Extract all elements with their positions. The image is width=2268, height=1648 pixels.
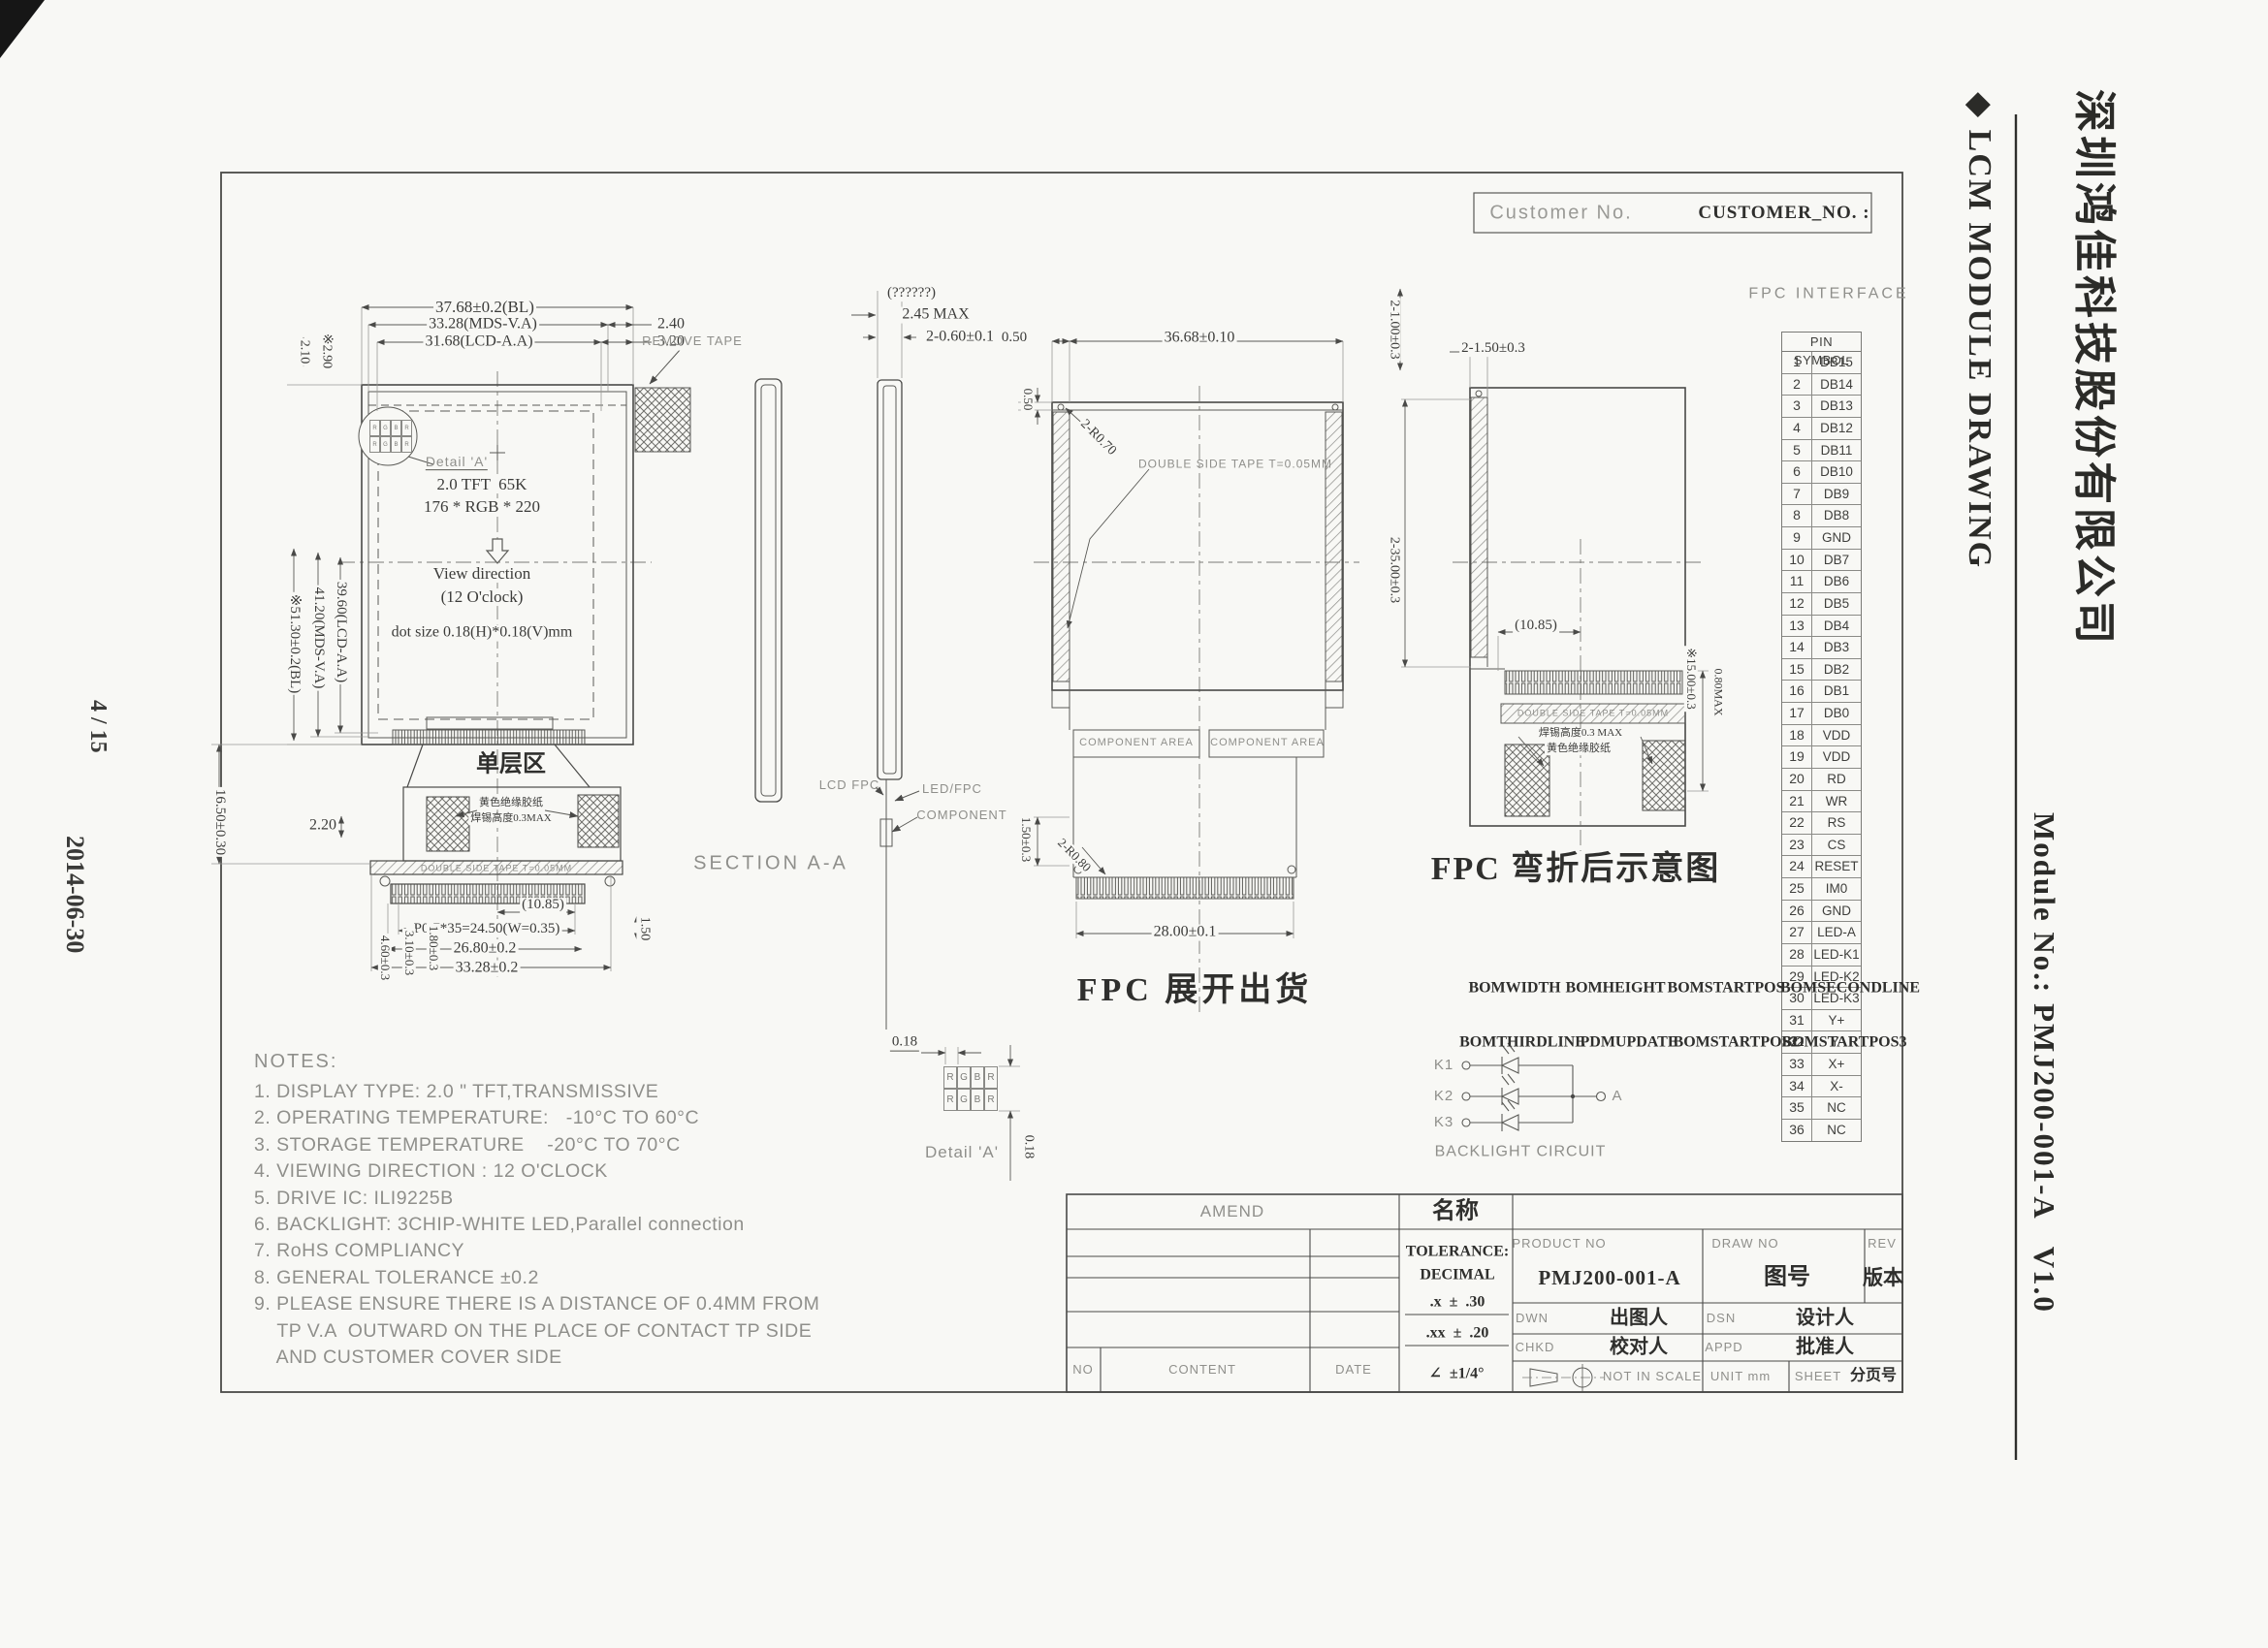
pin-number: 20 — [1782, 769, 1812, 790]
titleblock-date-label: DATE — [1335, 1363, 1372, 1377]
titleblock-no-label: NO — [1072, 1363, 1094, 1377]
pin-number: 7 — [1782, 484, 1812, 505]
pin-row: 21WR — [1782, 791, 1861, 813]
dim-label: ※51.30±0.2(BL) — [286, 592, 302, 695]
subpixel-cell: R — [943, 1066, 957, 1089]
pin-row: 33X+ — [1782, 1054, 1861, 1076]
pin-number: 24 — [1782, 856, 1812, 877]
pin-row: 4DB12 — [1782, 418, 1861, 440]
detail-a-pointer-label: Detail 'A' — [426, 455, 488, 470]
component-area-label: COMPONENT AREA — [1210, 738, 1325, 749]
customer-no-stamp: Customer No. — [1489, 203, 1632, 225]
pin-row: 23CS — [1782, 835, 1861, 857]
subpixel-cell: R — [369, 420, 380, 436]
pin-number: 12 — [1782, 593, 1812, 615]
pin-row: 18VDD — [1782, 725, 1861, 747]
note-line: 2. OPERATING TEMPERATURE: -10°C TO 60°C — [254, 1105, 933, 1131]
dim-label: 0.18 — [1021, 1133, 1036, 1161]
insulation-tape-label: 黄色绝缘胶纸 — [1545, 744, 1613, 755]
titleblock-rev: 版本 — [1863, 1267, 1903, 1288]
note-line: TP V.A OUTWARD ON THE PLACE OF CONTACT T… — [254, 1318, 933, 1345]
dim-label: 39.60(LCD-A.A) — [333, 580, 348, 684]
detail-a-subpixel-grid: RGBRRGBR — [943, 1066, 998, 1111]
pin-symbol: DB9 — [1812, 484, 1861, 505]
dim-label: 3.10±0.3 — [402, 929, 416, 977]
pin-symbol: GND — [1812, 527, 1861, 549]
pin-row: 12DB5 — [1782, 593, 1861, 616]
pin-number: 17 — [1782, 703, 1812, 724]
bom-artifact-text: BOMSTARTPOS — [1668, 981, 1785, 998]
titleblock-tolerance-label: TOLERANCE: — [1406, 1245, 1509, 1261]
pin-number: 13 — [1782, 616, 1812, 637]
pin-row: 11DB6 — [1782, 571, 1861, 593]
pin-number: 35 — [1782, 1097, 1812, 1119]
dim-label: 28.00±0.1 — [1152, 925, 1219, 941]
pin-symbol: DB7 — [1812, 550, 1861, 571]
backlight-terminal-label: K1 — [1434, 1058, 1453, 1073]
subpixel-cell: B — [391, 420, 401, 436]
note-line: 1. DISPLAY TYPE: 2.0 " TFT,TRANSMISSIVE — [254, 1079, 933, 1105]
backlight-terminal-label: K3 — [1434, 1115, 1453, 1130]
pin-row: 27LED-A — [1782, 922, 1861, 944]
pin-number: 6 — [1782, 461, 1812, 483]
pin-row: 3DB13 — [1782, 396, 1861, 418]
pin-symbol: LED-A — [1812, 922, 1861, 943]
component-area-label: COMPONENT AREA — [1079, 738, 1194, 749]
pin-number: 25 — [1782, 878, 1812, 900]
pin-number: 21 — [1782, 791, 1812, 812]
pin-symbol: CS — [1812, 835, 1861, 856]
dim-label: 41.20(MDS-V.A) — [310, 586, 326, 691]
pin-symbol: LED-K1 — [1812, 944, 1861, 966]
titleblock-dwn: 出图人 — [1610, 1309, 1668, 1329]
pin-number: 23 — [1782, 835, 1812, 856]
subpixel-cell: R — [401, 436, 412, 453]
pin-row: 35NC — [1782, 1097, 1861, 1120]
titleblock-amend-label: AMEND — [1200, 1203, 1264, 1220]
note-line: 9. PLEASE ENSURE THERE IS A DISTANCE OF … — [254, 1291, 933, 1317]
pin-symbol: DB11 — [1812, 440, 1861, 461]
remove-tape-label: REMOVE TAPE — [642, 334, 743, 348]
pin-symbol: NC — [1812, 1097, 1861, 1119]
titleblock-chkd: 校对人 — [1610, 1338, 1668, 1358]
titleblock-product-no: PMJ200-001-A — [1538, 1267, 1680, 1288]
titleblock-appd-label: APPD — [1705, 1341, 1742, 1354]
subpixel-cell: R — [401, 420, 412, 436]
note-line: AND CUSTOMER COVER SIDE — [254, 1345, 933, 1371]
titleblock-name-label: 名称 — [1432, 1199, 1479, 1223]
lcd-fpc-label: LCD FPC — [819, 778, 880, 792]
titleblock-content-label: CONTENT — [1168, 1363, 1236, 1377]
note-line: 3. STORAGE TEMPERATURE -20°C TO 70°C — [254, 1132, 933, 1158]
pin-symbol: WR — [1812, 791, 1861, 812]
single-layer-area-label: 单层区 — [476, 752, 546, 776]
dim-label: 1.50±0.3 — [1019, 815, 1033, 864]
dim-label: 2.20 — [307, 818, 338, 835]
bom-artifact-text: BOMSECONDLINE — [1780, 981, 1920, 998]
solder-height-label: 焊锡高度0.3 MAX — [1537, 728, 1624, 740]
pin-row: 13DB4 — [1782, 616, 1861, 638]
pin-row: 16DB1 — [1782, 681, 1861, 703]
pin-number: 4 — [1782, 418, 1812, 439]
module-no-vertical: Module No.: PMJ200-001-A V1.0 — [2027, 812, 2061, 1314]
titleblock-dsn: 设计人 — [1796, 1309, 1854, 1329]
note-line: 4. VIEWING DIRECTION : 12 O'CLOCK — [254, 1158, 933, 1185]
dim-label: ※2.90 — [319, 332, 334, 370]
backlight-anode-label: A — [1612, 1089, 1622, 1104]
pin-symbol: RS — [1812, 812, 1861, 834]
pin-row: 31Y+ — [1782, 1010, 1861, 1032]
dim-label: 2-1.50±0.3 — [1459, 341, 1527, 357]
dim-label: 33.28±0.2 — [454, 961, 521, 977]
pin-number: 3 — [1782, 396, 1812, 417]
sheet-page-number: 4 / 15 — [84, 700, 111, 753]
backlight-circuit-caption: BACKLIGHT CIRCUIT — [1435, 1145, 1607, 1161]
pin-row: 22RS — [1782, 812, 1861, 835]
pin-number: 10 — [1782, 550, 1812, 571]
dim-label: 36.68±0.10 — [1163, 331, 1237, 347]
led-fpc-label: LED/FPC — [922, 782, 982, 796]
display-spec-line2: 176 * RGB * 220 — [422, 498, 542, 516]
pin-number: 27 — [1782, 922, 1812, 943]
dim-label: (10.85) — [1513, 618, 1559, 634]
pin-row: 17DB0 — [1782, 703, 1861, 725]
pin-number: 28 — [1782, 944, 1812, 966]
pin-number: 5 — [1782, 440, 1812, 461]
note-line: 7. RoHS COMPLIANCY — [254, 1238, 933, 1264]
dim-label: 4.60±0.3 — [378, 934, 392, 982]
subpixel-cell: G — [957, 1066, 971, 1089]
titleblock-appd: 批准人 — [1796, 1338, 1854, 1358]
pin-number: 16 — [1782, 681, 1812, 702]
pin-row: 9GND — [1782, 527, 1861, 550]
pin-row: 10DB7 — [1782, 550, 1861, 572]
subpixel-cell: R — [984, 1066, 998, 1089]
pin-number: 1 — [1782, 352, 1812, 373]
view-direction-line2: (12 O'clock) — [439, 588, 526, 606]
pin-row: 1DB15 — [1782, 352, 1861, 374]
subpixel-cell: B — [391, 436, 401, 453]
pin-symbol: DB15 — [1812, 352, 1861, 373]
dim-label: 33.28(MDS-V.A) — [427, 317, 539, 333]
pin-number: 15 — [1782, 659, 1812, 681]
pin-number: 36 — [1782, 1120, 1812, 1141]
fpc-bent-caption: FPC 弯折后示意图 — [1431, 852, 1721, 887]
pin-row: 8DB8 — [1782, 505, 1861, 527]
note-line: 6. BACKLIGHT: 3CHIP-WHITE LED,Parallel c… — [254, 1212, 933, 1238]
pin-symbol: X+ — [1812, 1054, 1861, 1075]
dim-label: (10.85) — [520, 898, 566, 913]
pin-symbol: DB14 — [1812, 374, 1861, 396]
notes-section: NOTES: 1. DISPLAY TYPE: 2.0 " TFT,TRANSM… — [254, 1051, 933, 1371]
dim-label: 1.50 — [637, 915, 652, 943]
dim-label: 0.50 — [1021, 387, 1035, 413]
section-aa-caption: SECTION A-A — [693, 854, 848, 874]
titleblock-dwn-label: DWN — [1516, 1312, 1549, 1325]
tape-label: DOUBLE SIDE TAPE T=0.05MM — [421, 864, 572, 872]
dim-label: 31.68(LCD-A.A) — [423, 334, 534, 351]
bom-artifact-text: BOMHEIGHT — [1565, 981, 1665, 998]
pin-row: 24RESET — [1782, 856, 1861, 878]
pin-symbol: DB5 — [1812, 593, 1861, 615]
backlight-terminal-label: K2 — [1434, 1089, 1453, 1104]
subpixel-cell: B — [971, 1066, 984, 1089]
view-direction-line1: View direction — [431, 565, 532, 583]
titleblock-draw-no-label: DRAW NO — [1711, 1237, 1778, 1251]
fpc-open-caption: FPC 展开出货 — [1077, 973, 1313, 1008]
note-line: 8. GENERAL TOLERANCE ±0.2 — [254, 1265, 933, 1291]
pin-row: 28LED-K1 — [1782, 944, 1861, 967]
notes-title: NOTES: — [254, 1051, 933, 1073]
pin-number: 31 — [1782, 1010, 1812, 1031]
dim-label: (??????) — [885, 286, 938, 301]
subpixel-cell: B — [971, 1089, 984, 1111]
pin-number: 8 — [1782, 505, 1812, 526]
tape-label: DOUBLE SIDE TAPE T=0.05MM — [1517, 709, 1669, 717]
pin-row: 2DB14 — [1782, 374, 1861, 396]
pin-symbol: DB0 — [1812, 703, 1861, 724]
pin-symbol: RD — [1812, 769, 1861, 790]
bom-artifact-text: PDMUPDATE — [1580, 1035, 1677, 1052]
fpc-interface-title: FPC INTERFACE — [1748, 287, 1908, 303]
bom-artifact-text: BOMSTARTPOS2 — [1674, 1035, 1799, 1052]
titleblock-decimal-label: DECIMAL — [1420, 1268, 1494, 1284]
pin-number: 9 — [1782, 527, 1812, 549]
pin-symbol: X- — [1812, 1076, 1861, 1097]
pin-symbol: DB12 — [1812, 418, 1861, 439]
titleblock-unit: UNIT mm — [1710, 1370, 1771, 1383]
pin-symbol: VDD — [1812, 746, 1861, 768]
titleblock-not-in-scale: NOT IN SCALE — [1603, 1370, 1702, 1383]
pin-symbol: Y+ — [1812, 1010, 1861, 1031]
customer-no-label: CUSTOMER_NO. : — [1698, 203, 1869, 224]
pin-number: 26 — [1782, 901, 1812, 922]
insulation-tape-label: 黄色绝缘胶纸 — [477, 798, 545, 809]
pin-number: 11 — [1782, 571, 1812, 592]
display-spec-line1: 2.0 TFT 65K — [435, 476, 529, 493]
dim-label: 2.45 MAX — [900, 307, 971, 324]
component-label: COMPONENT — [916, 808, 1007, 822]
company-name-vertical: 深圳鸿佳科技股份有限公司 — [2067, 89, 2129, 648]
titleblock-tol-xx: .xx ± .20 — [1426, 1326, 1489, 1343]
drawing-sheet: ◆ LCM MODULE DRAWING 深圳鸿佳科技股份有限公司 Module… — [0, 0, 2268, 1648]
bom-artifact-text: BOMWIDTH — [1468, 981, 1560, 998]
solder-height-label: 焊锡高度0.3MAX — [468, 813, 553, 825]
subpixel-cell: G — [380, 436, 391, 453]
doc-type-vertical: ◆ LCM MODULE DRAWING — [1961, 92, 1999, 569]
pin-symbol: DB13 — [1812, 396, 1861, 417]
pin-symbol: DB8 — [1812, 505, 1861, 526]
pin-row: 19VDD — [1782, 746, 1861, 769]
titleblock-sheet-label: SHEET — [1795, 1370, 1841, 1383]
pin-row: 20RD — [1782, 769, 1861, 791]
pin-symbol-table: PIN SYMBOL 1DB152DB143DB134DB125DB116DB1… — [1781, 332, 1862, 1142]
subpixel-cell: R — [984, 1089, 998, 1111]
titleblock-sheet: 分页号 — [1850, 1369, 1897, 1385]
dot-size-text: dot size 0.18(H)*0.18(V)mm — [390, 625, 575, 642]
pin-symbol: IM0 — [1812, 878, 1861, 900]
drawing-linework — [0, 0, 2268, 1648]
pin-number: 33 — [1782, 1054, 1812, 1075]
dim-label: 2-35.00±0.3 — [1387, 535, 1401, 605]
tape-label: DOUBLE SIDE TAPE T=0.05MM — [1138, 459, 1332, 471]
pin-number: 19 — [1782, 746, 1812, 768]
pin-symbol: DB3 — [1812, 637, 1861, 658]
pin-symbol: NC — [1812, 1120, 1861, 1141]
subpixel-cell: R — [369, 436, 380, 453]
subpixel-cell: G — [957, 1089, 971, 1111]
titleblock-chkd-label: CHKD — [1516, 1341, 1555, 1354]
pin-number: 14 — [1782, 637, 1812, 658]
pin-symbol: DB1 — [1812, 681, 1861, 702]
detail-a-caption: Detail 'A' — [925, 1144, 999, 1161]
dim-label: 26.80±0.2 — [452, 941, 519, 958]
pin-symbol: GND — [1812, 901, 1861, 922]
pin-row: 34X- — [1782, 1076, 1861, 1098]
dim-label: ※15.00±0.3 — [1684, 646, 1698, 712]
pin-number: 2 — [1782, 374, 1812, 396]
pin-symbol: RESET — [1812, 856, 1861, 877]
pin-number: 18 — [1782, 725, 1812, 746]
titleblock-product-no-label: PRODUCT NO — [1512, 1237, 1606, 1251]
dim-label: 37.68±0.2(BL) — [433, 299, 536, 316]
dim-label: 2.40 — [655, 317, 687, 333]
titleblock-dsn-label: DSN — [1707, 1312, 1736, 1325]
pin-symbol: DB4 — [1812, 616, 1861, 637]
titleblock-rev-label: REV — [1868, 1237, 1897, 1251]
titleblock-tol-angle: ∠ ±1/4° — [1428, 1367, 1484, 1383]
subpixel-cell: G — [380, 420, 391, 436]
pin-row: 6DB10 — [1782, 461, 1861, 484]
dim-label: 2.10 — [297, 338, 311, 366]
note-line: 5. DRIVE IC: ILI9225B — [254, 1186, 933, 1212]
bom-artifact-text: BOMSTARTPOS3 — [1782, 1035, 1907, 1052]
titleblock-tol-x: .x ± .30 — [1430, 1295, 1485, 1312]
pin-symbol: DB6 — [1812, 571, 1861, 592]
dim-label: 0.50 — [1000, 331, 1029, 346]
pin-row: 25IM0 — [1782, 878, 1861, 901]
bom-artifact-text: BOMTHIRDLINE — [1459, 1035, 1585, 1052]
pin-number: 22 — [1782, 812, 1812, 834]
titleblock-draw-no: 图号 — [1764, 1265, 1810, 1289]
pin-row: 36NC — [1782, 1120, 1861, 1141]
dim-label: 0.80MAX — [1712, 666, 1725, 717]
pin-row: 5DB11 — [1782, 440, 1861, 462]
pin-symbol: DB2 — [1812, 659, 1861, 681]
pin-row: 7DB9 — [1782, 484, 1861, 506]
dim-label: 2-1.00±0.3 — [1387, 298, 1401, 361]
sheet-date: 2014-06-30 — [60, 836, 89, 953]
dim-label: 2-0.60±0.1 — [924, 330, 996, 346]
pin-row: 15DB2 — [1782, 659, 1861, 681]
subpixel-cell: R — [943, 1089, 957, 1111]
dim-label: 1.80±0.3 — [427, 924, 440, 972]
dim-label: 16.50±0.30 — [211, 787, 227, 857]
dim-label: 0.18 — [890, 1035, 919, 1052]
pin-table-header: PIN SYMBOL — [1782, 333, 1861, 352]
pin-number: 34 — [1782, 1076, 1812, 1097]
detail-a-zoom-circle-grid: RGBRRGBR — [369, 420, 412, 453]
pin-symbol: DB10 — [1812, 461, 1861, 483]
pin-row: 26GND — [1782, 901, 1861, 923]
pin-symbol: VDD — [1812, 725, 1861, 746]
pin-row: 14DB3 — [1782, 637, 1861, 659]
